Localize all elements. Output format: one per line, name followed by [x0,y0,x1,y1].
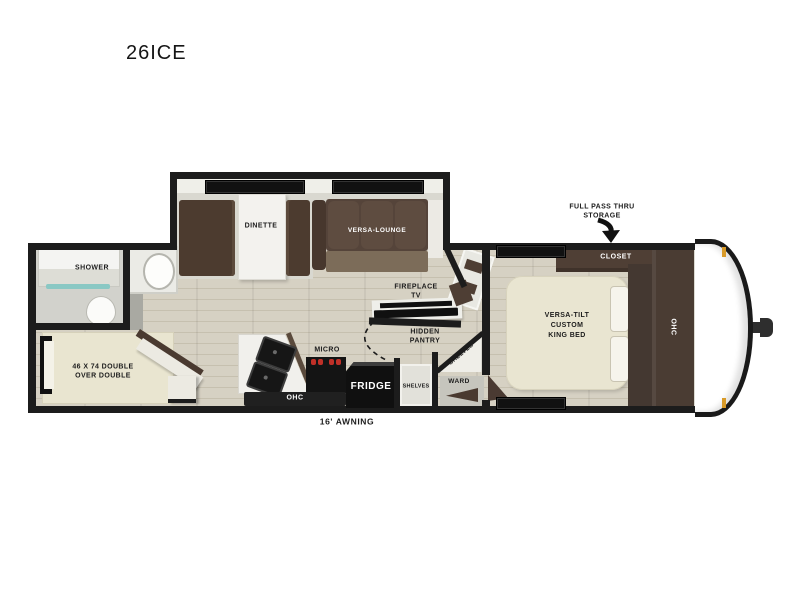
fireplace-tv-label: FIREPLACE TV [394,283,437,301]
wall-top-rear [28,243,177,250]
front-cap [695,239,753,417]
bunk-end-wall [168,376,196,403]
storage-arrow-icon [598,220,611,233]
dinette-bench-right [286,200,310,276]
bed-pillow [610,336,629,382]
storage-label-line2: STORAGE [569,212,634,221]
shower-water-strip [46,284,110,289]
floorplan-page: 26ICE DINETTE VERSA-LOUNGE SHOWER [0,0,800,600]
bunk-label: 46 X 74 DOUBLE OVER DOUBLE [72,363,133,381]
dinette-table [238,194,286,280]
bunk-label-line2: OVER DOUBLE [72,372,133,381]
dinette-bench-left [179,200,235,276]
shower-label: SHOWER [75,265,109,274]
fridge-label: FRIDGE [351,381,392,394]
marker-light-bottom [722,398,726,408]
bedroom-wall-stub [482,400,490,410]
pantry-label-line2: PANTRY [410,337,440,346]
marker-light-top [722,247,726,257]
vanity-cabinet [130,294,143,330]
vanity-sink [143,253,175,290]
bathroom-wall-right [123,243,130,330]
bed-label-line1: VERSA-TILT [545,311,590,321]
hidden-pantry-label: HIDDEN PANTRY [410,328,440,346]
sofa-arm-left [312,200,326,270]
bedroom-ohc-label: OHC [668,318,677,335]
stove-burner [329,359,334,365]
storage-label-line1: FULL PASS THRU [569,203,634,212]
page-title: 26ICE [126,42,187,65]
bathroom-wall-bottom [35,323,130,330]
sofa-cushion [361,201,392,249]
slideout-wall-left [170,172,177,250]
slideout-window-right [332,180,424,194]
wall-fridge-right [394,358,400,410]
slideout-window-left [205,180,305,194]
sofa-seat [326,251,428,272]
bedroom-wall [482,243,490,375]
fireplace-label-line2: TV [394,292,437,301]
sofa-cushion [328,201,359,249]
bed-label-line2: CUSTOM [545,321,590,331]
stove-burner [318,359,323,365]
toilet [86,296,116,326]
bed-head-cabinet [628,264,652,406]
slideout-wall-top [170,172,450,179]
stove-burner [336,359,341,365]
hitch-coupler [760,318,773,337]
kitchen-ohc-label: OHC [286,395,303,404]
bedroom-window-top [496,245,566,258]
dinette-label: DINETTE [245,223,278,232]
storage-arrowhead-icon [602,230,620,243]
shelves-small-label: SHELVES [403,384,430,391]
ward-label: WARD [448,378,469,386]
king-bed-label: VERSA-TILT CUSTOM KING BED [545,311,590,341]
pantry-label-line1: HIDDEN [410,328,440,337]
pass-thru-storage-label: FULL PASS THRU STORAGE [569,203,634,221]
wall-shelves-right [432,352,438,410]
sofa-back [326,199,428,251]
sofa-end-ledge [428,200,443,258]
micro-label: MICRO [314,347,339,356]
stove-burner [311,359,316,365]
bed-pillow [610,286,629,332]
fireplace-label-line1: FIREPLACE [394,283,437,292]
bedroom-window-bottom [496,397,566,410]
slideout-wall-right [443,172,450,250]
bunk-window-opening [44,341,54,389]
bunk-label-line1: 46 X 74 DOUBLE [72,363,133,372]
sofa-cushion [395,201,426,249]
stove [306,357,346,393]
awning-label: 16' AWNING [320,417,374,428]
bed-label-line3: KING BED [545,331,590,341]
versa-lounge-label: VERSA-LOUNGE [348,227,406,235]
closet-label: CLOSET [600,254,631,263]
